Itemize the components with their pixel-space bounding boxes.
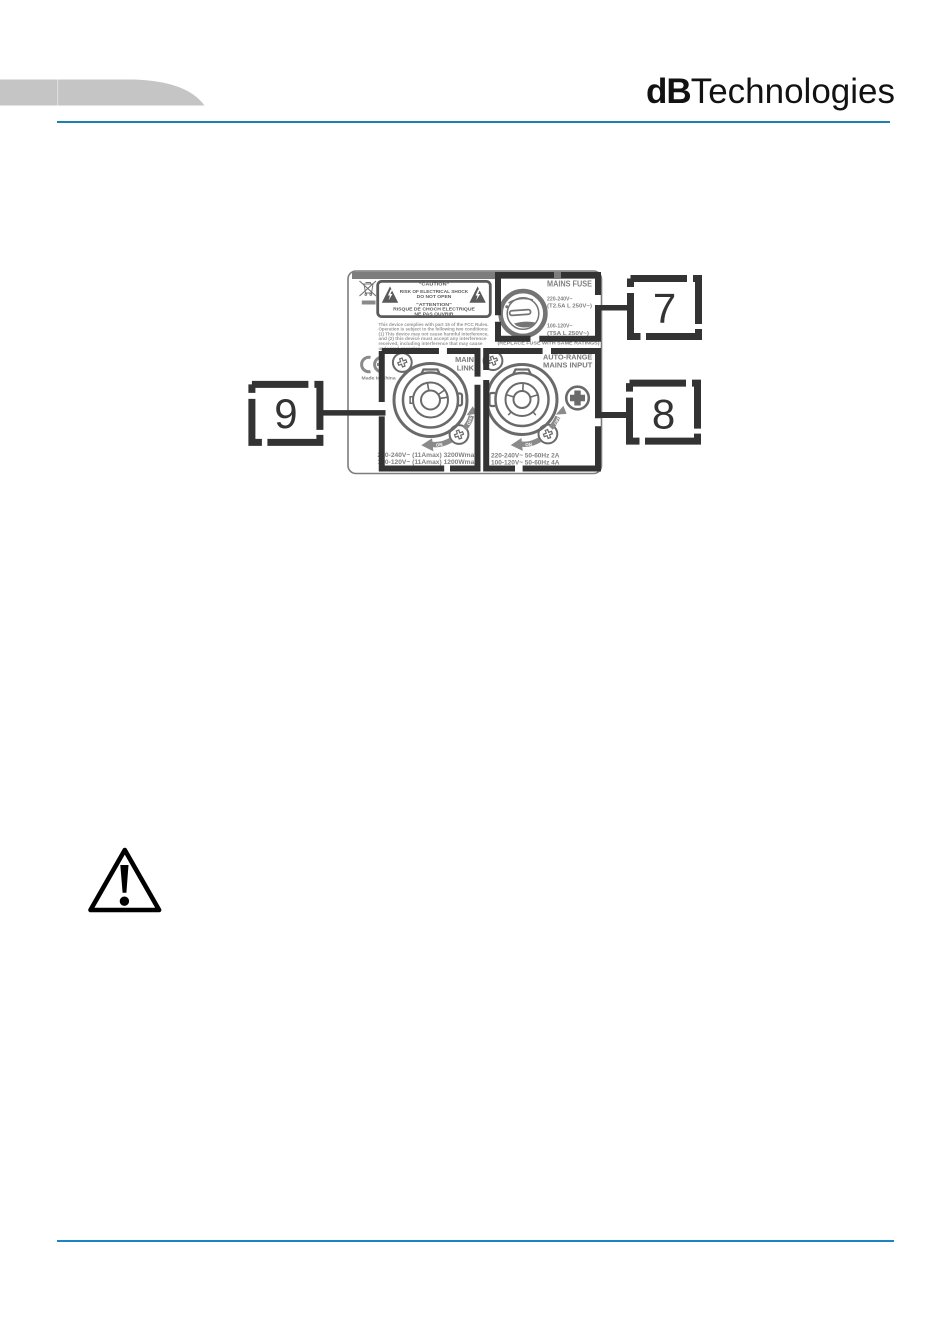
svg-text:LINK: LINK	[457, 363, 475, 372]
svg-text:100-120V~ (11Amax) 1200Wmax: 100-120V~ (11Amax) 1200Wmax	[378, 460, 479, 466]
svg-text:220-240V~ 50-60Hz 2A: 220-240V~ 50-60Hz 2A	[491, 453, 560, 459]
svg-text:8: 8	[652, 391, 675, 438]
svg-text:7: 7	[653, 285, 676, 332]
svg-text:"CAUTION": "CAUTION"	[419, 282, 450, 288]
svg-text:220-240V~ (11Amax) 3200Wmax: 220-240V~ (11Amax) 3200Wmax	[378, 453, 479, 459]
svg-text:DO NOT OPEN: DO NOT OPEN	[417, 294, 452, 300]
svg-text:220-240V~: 220-240V~	[547, 296, 573, 302]
svg-text:ON: ON	[525, 442, 532, 448]
svg-text:MAINS INPUT: MAINS INPUT	[543, 361, 593, 370]
svg-text:ON: ON	[436, 442, 443, 448]
svg-text:(T2.5A L 250V~): (T2.5A L 250V~)	[547, 304, 592, 310]
svg-text:9: 9	[274, 390, 297, 437]
svg-text:MAINS FUSE: MAINS FUSE	[547, 278, 592, 288]
svg-text:100-120V~: 100-120V~	[547, 323, 573, 329]
svg-text:NE PAS OUVRIR: NE PAS OUVRIR	[414, 312, 454, 318]
